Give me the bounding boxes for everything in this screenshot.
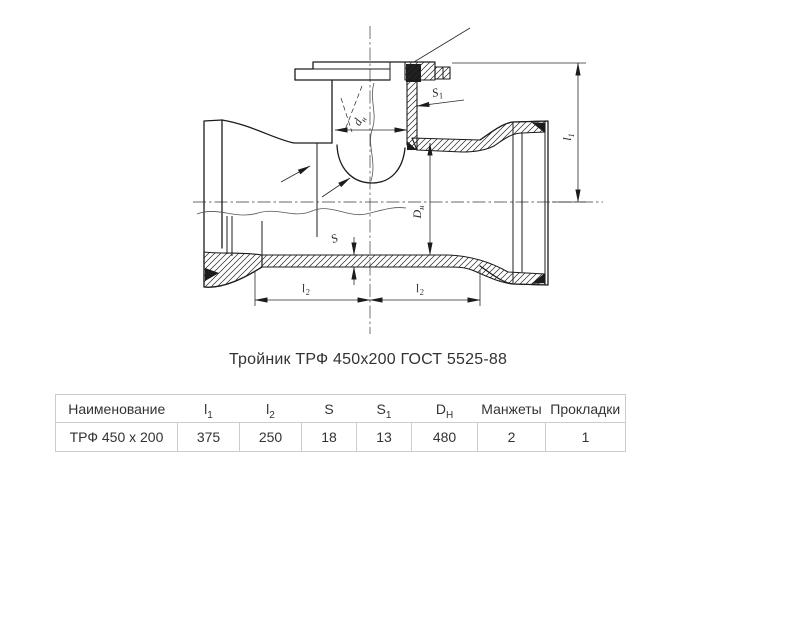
dim-label-l2-right: l2 [415,280,425,297]
cell-name: ТРФ 450 х 200 [56,423,178,452]
col-header-cuffs: Манжеты [478,395,546,423]
main-pipe [204,120,548,287]
flange-leader [414,28,470,62]
dimensions: dн S1 l1 Dн S l2 l2 [255,63,586,306]
branch [332,64,421,183]
drawing-title: Тройник ТРФ 450х200 ГОСТ 5525-88 [0,351,736,369]
cell-gaskets: 1 [546,423,626,452]
dim-label-s: S [329,231,340,246]
leaders [281,28,470,197]
dim-label-dn: dн [350,112,369,129]
branch-wall-section [407,80,417,150]
col-header-s: S [302,395,357,423]
flange [295,62,450,80]
dim-label-l1: l1 [560,133,576,141]
leader-arrow-2 [322,178,350,197]
specs-table: Наименование l1 l2 S S1 DН Манжеты Прокл… [55,394,626,452]
cell-cuffs: 2 [478,423,546,452]
col-header-s1: S1 [357,395,412,423]
dim-label-l2-left: l2 [301,280,311,297]
dim-label-s1: S1 [431,84,444,102]
pipe-top-wall-section [412,121,545,152]
table-row: ТРФ 450 х 200 375 250 18 13 480 2 1 [56,423,626,452]
col-header-name: Наименование [56,395,178,423]
left-socket-section [204,252,262,287]
branch-break-line [371,83,375,181]
pipe-top-outline [222,120,332,143]
centerlines [193,26,603,334]
flange-section [405,62,435,80]
cell-l1: 375 [178,423,240,452]
col-header-l1: l1 [178,395,240,423]
col-header-gaskets: Прокладки [546,395,626,423]
dim-label-Dn: Dн [410,206,426,220]
branch-bore [337,145,405,183]
col-header-l2: l2 [240,395,302,423]
col-header-dn: DН [412,395,478,423]
break-lines [197,83,406,215]
page: dн S1 l1 Dн S l2 l2 Тройник ТРФ 450х200 … [0,0,800,623]
cell-l2: 250 [240,423,302,452]
leader-arrow-1 [281,166,310,182]
cell-s1: 13 [357,423,412,452]
technical-drawing: dн S1 l1 Dн S l2 l2 [0,0,800,340]
pipe-break-line [197,208,406,215]
cell-dn: 480 [412,423,478,452]
cell-s: 18 [302,423,357,452]
dim-line-s1 [417,100,464,106]
header-row: Наименование l1 l2 S S1 DН Манжеты Прокл… [56,395,626,423]
